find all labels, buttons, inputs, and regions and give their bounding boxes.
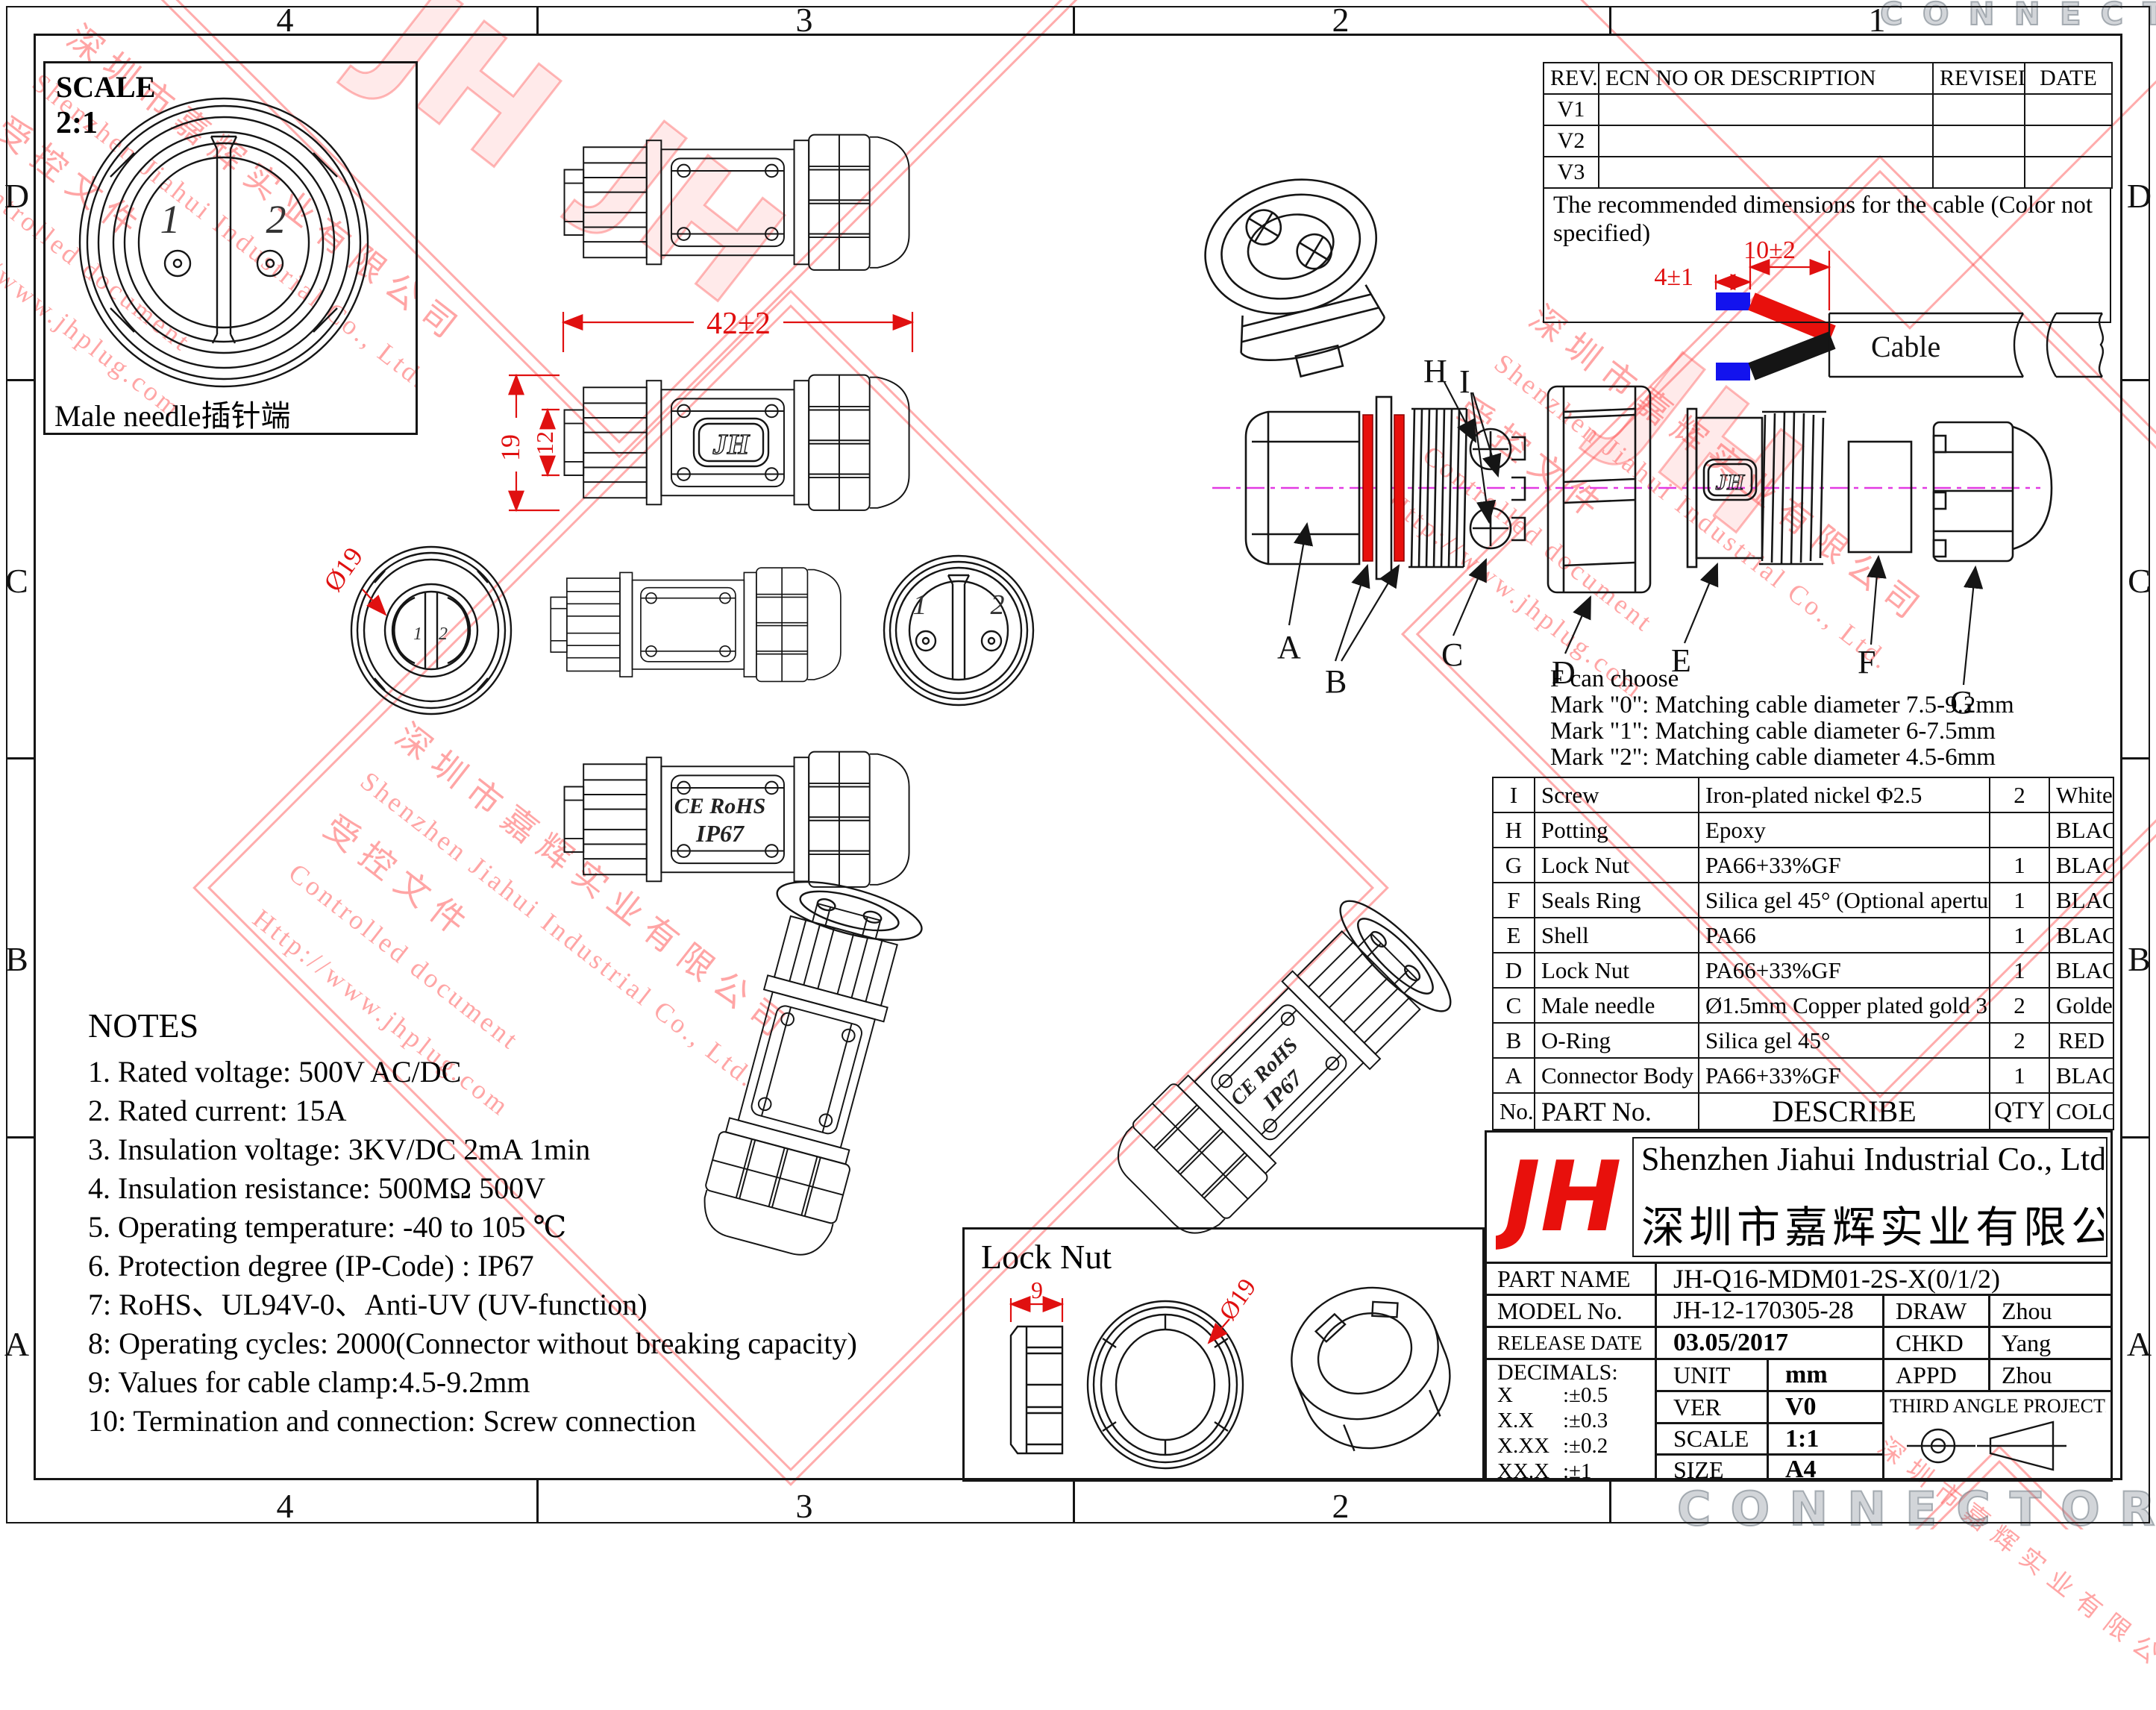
decimals-row: X.XX:±0.2 <box>1497 1434 1650 1459</box>
part-name: O-Ring <box>1535 1023 1699 1058</box>
decimals-row: XX.X:±1 <box>1497 1459 1650 1484</box>
part-color: RED <box>2049 1023 2113 1058</box>
connector-ghost-text: CONNECTOR <box>1677 1482 2156 1536</box>
cable-label: Cable <box>1871 330 1940 363</box>
ecn-header: ECN NO OR DESCRIPTION <box>1599 63 1933 94</box>
mating-connector-top <box>1191 162 1406 392</box>
release-label: RELEASE DATE <box>1497 1328 1650 1358</box>
footer-color: COLOR <box>2049 1093 2113 1130</box>
zone-tick <box>536 1480 539 1522</box>
ce-rohs-marking: CE RoHS <box>674 794 766 818</box>
dim-42: 42±2 <box>563 307 912 352</box>
ecn-cell <box>1599 157 1933 188</box>
date-cell <box>2025 157 2112 188</box>
label-a: A <box>1277 629 1301 665</box>
front-pin1-numeral: 1 <box>913 589 927 621</box>
rev-row: V1 <box>1544 94 1599 125</box>
connector-ghost-text-top: CONNECTOR <box>1880 0 2156 32</box>
part-name-label: PART NAME <box>1497 1264 1650 1294</box>
size-value: A4 <box>1785 1456 1875 1484</box>
decimals-xx: X.X <box>1497 1409 1563 1433</box>
zone-left-b: B <box>0 939 34 979</box>
part-describe: Ø1.5mm Copper plated gold 3μ" <box>1699 988 1990 1023</box>
zone-tick <box>2122 1136 2149 1139</box>
zone-bottom-4: 4 <box>263 1486 307 1526</box>
appd-value: Zhou <box>2002 1360 2099 1390</box>
notes-block: NOTES 1. Rated voltage: 500V AC/DC 2. Ra… <box>88 1006 976 1441</box>
ecn-cell <box>1599 94 1933 125</box>
part-name: Male needle <box>1535 988 1699 1023</box>
title-block: JH Shenzhen Jiahui Industrial Co., Ltd. … <box>1485 1130 2113 1482</box>
revision-table: REV. ECN NO OR DESCRIPTION REVISED DATE … <box>1543 62 2113 189</box>
ip67-marking: IP67 <box>695 820 745 847</box>
decimals-xxd-tol: :±1 <box>1563 1459 1591 1483</box>
zone-top-4: 4 <box>263 0 307 40</box>
part-name: Potting <box>1535 812 1699 848</box>
part-g-locknut <box>1934 422 2052 561</box>
zone-tick <box>7 1136 34 1139</box>
back-pin1-numeral: 1 <box>413 624 422 644</box>
part-name: Seals Ring <box>1535 883 1699 918</box>
chkd-label: CHKD <box>1896 1328 1981 1358</box>
zone-tick <box>2122 757 2149 760</box>
wire-black <box>1752 340 1832 372</box>
connector-back-view: 1 2 <box>351 547 511 714</box>
zone-tick <box>7 757 34 760</box>
company-name-en: Shenzhen Jiahui Industrial Co., Ltd. <box>1641 1140 2104 1178</box>
rev-header: REV. <box>1544 63 1599 94</box>
part-name: Connector Body <box>1535 1058 1699 1093</box>
front-pin2-numeral: 2 <box>991 589 1005 621</box>
f-choose-line: Mark "1": Matching cable diameter 6-7.5m… <box>1550 718 2014 745</box>
part-color: BLACK <box>2049 953 2113 988</box>
projection-label: THIRD ANGLE PROJECTION <box>1890 1395 2106 1418</box>
f-choose-line: Mark "2": Matching cable diameter 4.5-6m… <box>1550 745 2014 771</box>
dim-dia19-body: Ø19 <box>318 542 386 615</box>
footer-describe: DESCRIBE <box>1699 1093 1990 1130</box>
f-choose-line: F can choose <box>1550 666 2014 692</box>
part-describe: PA66+33%GF <box>1699 1058 1990 1093</box>
part-color: BLACK <box>2049 1058 2113 1093</box>
zone-tick <box>1609 1480 1611 1522</box>
footer-no: No. <box>1493 1093 1535 1130</box>
scale-row-label: SCALE <box>1673 1424 1759 1453</box>
part-qty: 1 <box>1990 1058 2049 1093</box>
zone-top-3: 3 <box>782 0 827 40</box>
part-no: D <box>1493 953 1535 988</box>
decimals-x: X <box>1497 1383 1563 1408</box>
zone-bottom-3: 3 <box>782 1486 827 1526</box>
model-value: JH-12-170305-28 <box>1673 1296 1875 1326</box>
zone-bottom-2: 2 <box>1318 1486 1363 1526</box>
cable-recommendation-box: The recommended dimensions for the cable… <box>1543 187 2111 323</box>
part-no: A <box>1493 1058 1535 1093</box>
size-label: SIZE <box>1673 1456 1759 1484</box>
decimals-row: X.X:±0.3 <box>1497 1409 1650 1433</box>
note-line: 6. Protection degree (IP-Code) : IP67 <box>88 1247 976 1285</box>
company-name-cn: 深圳市嘉辉实业有限公司 <box>1641 1192 2104 1255</box>
decimals-xxx-tol: :±0.2 <box>1563 1434 1608 1458</box>
part-no: C <box>1493 988 1535 1023</box>
o-ring-1 <box>1363 415 1373 561</box>
locknut-title: Lock Nut <box>981 1237 1112 1277</box>
part-name: Lock Nut <box>1535 848 1699 883</box>
part-qty <box>1990 812 2049 848</box>
watermark-jh-logo: JH <box>565 90 814 337</box>
rev-row: V2 <box>1544 125 1599 157</box>
draw-value: Zhou <box>2002 1296 2099 1326</box>
connector-3d-right: CE RoHS IP67 <box>1098 888 1464 1253</box>
zone-tick <box>1073 1480 1075 1522</box>
zone-left-c: C <box>0 561 34 601</box>
part-color: BLACK <box>2049 918 2113 953</box>
notes-title: NOTES <box>88 1006 976 1045</box>
zone-tick <box>7 379 34 381</box>
part-qty: 1 <box>1990 953 2049 988</box>
part-no: B <box>1493 1023 1535 1058</box>
part-name: Screw <box>1535 777 1699 812</box>
note-line: 3. Insulation voltage: 3KV/DC 2mA 1min <box>88 1130 976 1169</box>
note-line: 9: Values for cable clamp:4.5-9.2mm <box>88 1363 976 1402</box>
zone-tick <box>536 7 539 34</box>
zone-right-c: C <box>2122 561 2156 601</box>
decimals-xxx: X.XX <box>1497 1434 1563 1459</box>
note-line: 5. Operating temperature: -40 to 105 ℃ <box>88 1208 976 1247</box>
zone-tick <box>2122 379 2149 381</box>
part-describe: PA66 <box>1699 918 1990 953</box>
decimals-xxd: XX.X <box>1497 1459 1563 1484</box>
date-cell <box>2025 125 2112 157</box>
decimals-x-tol: :±0.5 <box>1563 1383 1608 1407</box>
dim-12-text: 12 <box>531 431 558 455</box>
zone-left-d: D <box>0 176 34 216</box>
zone-left-a: A <box>0 1324 34 1364</box>
label-c: C <box>1441 636 1463 673</box>
label-i: I <box>1459 363 1470 400</box>
flange <box>1376 397 1391 579</box>
part-name: Shell <box>1535 918 1699 953</box>
note-line: 4. Insulation resistance: 500MΩ 500V <box>88 1169 976 1208</box>
part-describe: Silica gel 45° (Optional aperture) <box>1699 883 1990 918</box>
part-qty: 1 <box>1990 883 2049 918</box>
part-qty: 2 <box>1990 988 2049 1023</box>
ver-label: VER <box>1673 1392 1759 1422</box>
zone-right-a: A <box>2122 1324 2156 1364</box>
part-color: White <box>2049 777 2113 812</box>
part-qty: 2 <box>1990 777 2049 812</box>
scale-detail-box: SCALE 2:1 Male needle插针端 <box>43 61 418 435</box>
dim-19-12: 19 12 <box>495 375 560 510</box>
zone-top-2: 2 <box>1318 0 1363 40</box>
unit-label: UNIT <box>1673 1360 1759 1390</box>
part-no: F <box>1493 883 1535 918</box>
note-line: 10: Termination and connection: Screw co… <box>88 1402 976 1441</box>
dim-19-text: 19 <box>495 434 525 461</box>
part-name: Lock Nut <box>1535 953 1699 988</box>
part-describe: Epoxy <box>1699 812 1990 848</box>
part-no: G <box>1493 848 1535 883</box>
revised-cell <box>1933 94 2025 125</box>
appd-label: APPD <box>1896 1360 1981 1390</box>
cable-note-line2: specified) <box>1553 220 1650 248</box>
scale-row-value: 1:1 <box>1785 1424 1875 1453</box>
draw-label: DRAW <box>1896 1296 1981 1326</box>
locknut-box: Lock Nut <box>962 1227 1485 1482</box>
connector-side-view-small <box>551 568 841 681</box>
part-a-body <box>1246 412 1359 564</box>
ver-value: V0 <box>1785 1392 1875 1422</box>
zone-tick <box>1073 7 1075 34</box>
revised-cell <box>1933 125 2025 157</box>
chkd-value: Yang <box>2002 1328 2099 1358</box>
note-line: 2. Rated current: 15A <box>88 1092 976 1130</box>
company-name-box: Shenzhen Jiahui Industrial Co., Ltd. 深圳市… <box>1632 1137 2108 1257</box>
ip67-marking-3d: IP67 <box>1258 1065 1308 1115</box>
ce-rohs-marking-3d: CE RoHS <box>1226 1033 1303 1110</box>
part-qty: 2 <box>1990 1023 2049 1058</box>
part-describe: PA66+33%GF <box>1699 848 1990 883</box>
unit-value: mm <box>1785 1360 1875 1390</box>
note-line: 7: RoHS、UL94V-0、Anti-UV (UV-function) <box>88 1285 976 1324</box>
model-label: MODEL No. <box>1497 1296 1650 1326</box>
zone-right-b: B <box>2122 939 2156 979</box>
note-line: 1. Rated voltage: 500V AC/DC <box>88 1053 976 1092</box>
part-color: BLACK <box>2049 812 2113 848</box>
scale-label: SCALE <box>56 69 155 104</box>
part-describe: Iron-plated nickel Φ2.5 <box>1699 777 1990 812</box>
part-name-value: JH-Q16-MDM01-2S-X(0/1/2) <box>1673 1264 2099 1294</box>
note-line: 8: Operating cycles: 2000(Connector with… <box>88 1324 976 1363</box>
zone-tick <box>1609 7 1611 34</box>
cable-note-line1: The recommended dimensions for the cable… <box>1553 192 2093 219</box>
part-describe: Silica gel 45° <box>1699 1023 1990 1058</box>
revised-header: REVISED <box>1933 63 2025 94</box>
part-color: Golden <box>2049 988 2113 1023</box>
label-h: H <box>1423 353 1447 389</box>
connector-front-view: 1 2 <box>884 556 1033 705</box>
part-color: BLACK <box>2049 848 2113 883</box>
engineering-drawing-sheet: { "colors": {"accent_red": "#e8100c", "d… <box>0 0 2156 1529</box>
jh-logo-text: JH <box>712 429 750 460</box>
connector-side-view-2 <box>565 375 909 510</box>
dim-dia19-text: Ø19 <box>318 542 369 597</box>
part-qty: 1 <box>1990 918 2049 953</box>
part-no: I <box>1493 777 1535 812</box>
decimals-title: DECIMALS: <box>1497 1360 1650 1385</box>
ecn-cell <box>1599 125 1933 157</box>
date-cell <box>2025 94 2112 125</box>
release-value: 03.05/2017 <box>1673 1328 1875 1358</box>
zone-right-d: D <box>2122 176 2156 216</box>
f-choose-line: Mark "0": Matching cable diameter 7.5-9.… <box>1550 692 2014 718</box>
parts-table: IScrewIron-plated nickel Φ2.52White HPot… <box>1492 777 2114 1130</box>
part-describe: PA66+33%GF <box>1699 953 1990 988</box>
jh-logo-emboss-row2: JH <box>694 419 768 466</box>
detail-caption: Male needle插针端 <box>54 392 291 435</box>
back-pin2-numeral: 2 <box>439 624 448 644</box>
date-header: DATE <box>2025 63 2112 94</box>
part-no: E <box>1493 918 1535 953</box>
rev-row: V3 <box>1544 157 1599 188</box>
scale-value: 2:1 <box>56 105 98 141</box>
label-b: B <box>1325 663 1347 700</box>
part-no: H <box>1493 812 1535 848</box>
footer-qty: QTY <box>1990 1093 2049 1130</box>
zone-top-1: 1 <box>1855 0 1899 40</box>
decimals-xx-tol: :±0.3 <box>1563 1409 1608 1432</box>
decimals-row: X:±0.5 <box>1497 1383 1650 1408</box>
footer-part: PART No. <box>1535 1093 1699 1130</box>
f-choose-note: F can choose Mark "0": Matching cable di… <box>1550 666 2014 771</box>
part-color: BLACK <box>2049 883 2113 918</box>
part-qty: 1 <box>1990 848 2049 883</box>
company-logo-jh: JH <box>1496 1137 1630 1256</box>
revised-cell <box>1933 157 2025 188</box>
